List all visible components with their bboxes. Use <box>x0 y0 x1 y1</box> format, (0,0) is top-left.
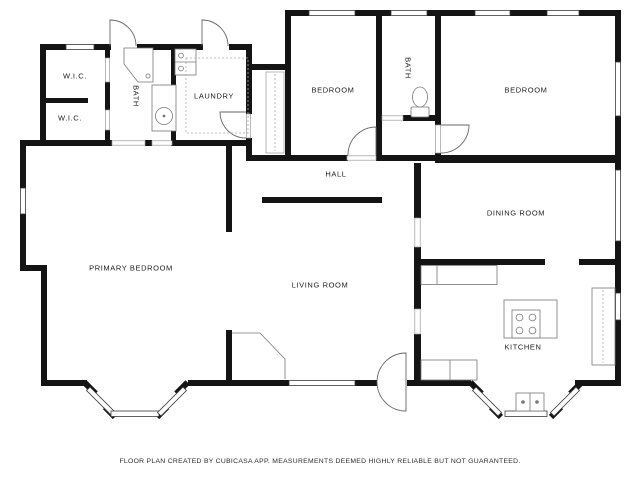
exterior-door-arc <box>202 20 228 46</box>
washer-dryer-icon <box>175 49 196 75</box>
room-label-wic-lower: W.I.C. <box>58 114 82 123</box>
fireplace-icon <box>232 333 285 379</box>
disclaimer-caption: FLOOR PLAN CREATED BY CUBICASA APP. MEAS… <box>119 458 520 465</box>
entry-door-arc <box>377 353 406 411</box>
room-label-wic-upper: W.I.C. <box>63 72 87 81</box>
room-label-kitchen: KITCHEN <box>504 343 541 352</box>
stove-island-icon <box>504 300 557 338</box>
floor-plan-drawing <box>0 0 640 480</box>
room-label-bedroom-front: BEDROOM <box>312 86 355 95</box>
bedroom-right-door-arc <box>441 125 469 153</box>
corner-shower-icon <box>124 48 153 82</box>
room-label-hall: HALL <box>325 170 346 179</box>
vanity-sink-icon <box>152 85 176 131</box>
fixtures <box>124 48 615 411</box>
kitchen-sink-icon <box>516 393 544 411</box>
room-label-living-room: LIVING ROOM <box>292 281 349 290</box>
hall-closet <box>266 72 284 153</box>
room-label-bath-primary: BATH <box>132 85 141 107</box>
room-label-primary-bedroom: PRIMARY BEDROOM <box>89 264 173 273</box>
exterior-door-arc <box>110 20 136 46</box>
room-label-laundry: LAUNDRY <box>194 92 234 101</box>
room-label-bath-hall: BATH <box>404 57 413 79</box>
room-label-dining-room: DINING ROOM <box>487 209 545 218</box>
bedroom-front-door-arc <box>348 127 376 155</box>
laundry-door-arc <box>220 112 246 138</box>
room-label-bedroom-right: BEDROOM <box>505 86 548 95</box>
toilet-icon <box>411 87 429 117</box>
floor-plan-canvas: W.I.C. W.I.C. BATH LAUNDRY BEDROOM BATH … <box>0 0 640 480</box>
